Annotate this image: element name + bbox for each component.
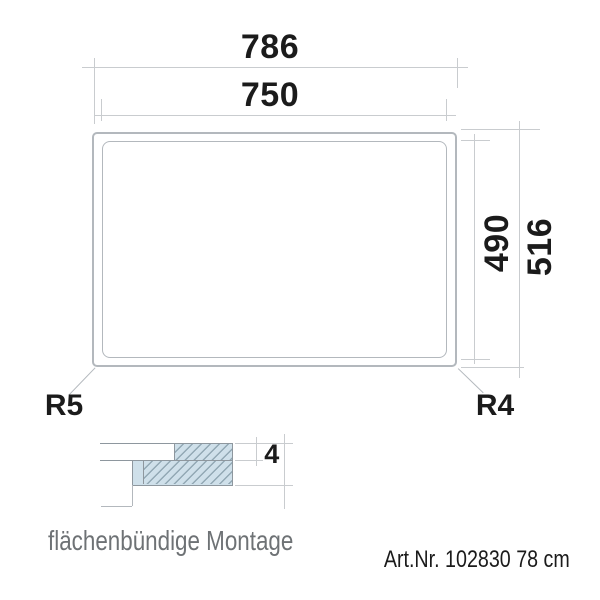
- cutout-outline: [102, 141, 447, 358]
- radius-label-r4: R4: [465, 391, 525, 421]
- dimension-cutout-height: 490: [480, 183, 514, 303]
- article-number: Art.Nr. 102830 78 cm: [384, 547, 570, 573]
- glass-body-hatch: [143, 461, 233, 484]
- extension-line-516-top: [461, 129, 540, 130]
- radius-label-r5: R5: [34, 391, 94, 421]
- glass-flange-section: [174, 443, 233, 462]
- dimension-line-490: [474, 134, 475, 364]
- cabinet-line-horizontal: [101, 506, 132, 507]
- mounting-caption: flächenbündige Montage: [48, 526, 293, 556]
- section-dimension-line-4: [256, 437, 257, 466]
- tick-750-left: [101, 99, 102, 121]
- dimension-outer-height: 516: [523, 187, 557, 307]
- extension-line-516-bottom: [461, 367, 524, 368]
- glass-body-section: [132, 460, 233, 486]
- cabinet-line-vertical: [132, 485, 133, 506]
- extension-line-490-top: [461, 140, 490, 141]
- dimension-line-750: [95, 115, 456, 116]
- dimension-cutout-width: 750: [200, 78, 340, 112]
- extension-line-786-right: [457, 58, 458, 88]
- dimension-glass-thickness: 4: [258, 441, 286, 468]
- dimension-line-786: [82, 67, 468, 68]
- worktop-section: [100, 443, 175, 462]
- dimension-line-516: [519, 121, 520, 378]
- extension-line-490-bottom: [461, 359, 490, 360]
- dimension-outer-width: 786: [200, 30, 340, 64]
- tick-750-right: [446, 99, 447, 121]
- technical-drawing: 786 750 490 516 R5 R4 4 flächenbündige M…: [0, 0, 600, 600]
